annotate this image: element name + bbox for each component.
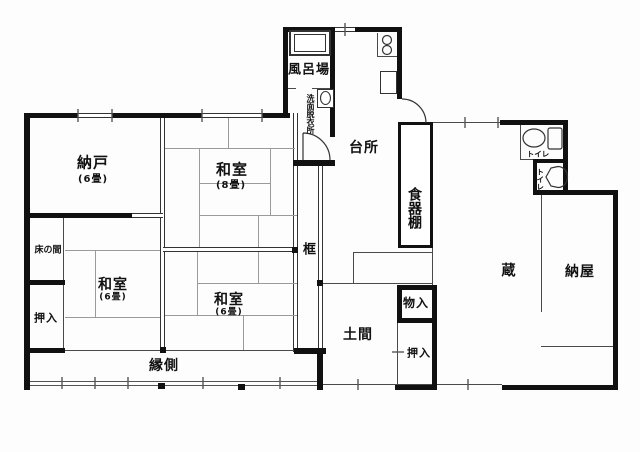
room-size-washitsu6b: (6畳) [215,309,243,318]
opening-tick-marks [62,23,498,390]
room-label-oshiire2: 押入 [407,348,431,359]
room-label-washitsu8: 和室 [216,163,248,178]
pillar-marks [158,247,323,390]
room-label-daidokoro: 台所 [349,141,379,155]
door-swing-icon [303,133,330,160]
room-size-washitsu8: (8畳) [216,181,246,191]
room-label-engawa: 縁側 [149,359,179,373]
room-label-toire1: トイレ [527,150,550,158]
room-label-washitsu6b: 和室 [214,293,244,307]
room-size-nando: (6畳) [78,175,108,185]
washbasin-icon [321,92,331,105]
urinal-icon [546,167,568,188]
room-label-senmen-datsuijo: 洗面脱衣所 [306,94,314,134]
room-label-tokonoma: 床の間 [34,247,61,256]
room-label-naya: 納屋 [565,265,595,279]
room-label-kamachi: 框 [303,244,317,257]
door-swing-icon [402,99,426,123]
room-label-furoba: 風呂場 [288,64,330,77]
room-label-nando: 納戸 [77,156,109,171]
toilet-icon [523,129,545,147]
room-label-oshiire1: 押入 [34,313,58,324]
room-label-washitsu6a: 和室 [98,278,128,292]
room-label-toire2: トイレ [536,168,544,191]
stove-icon [383,36,392,45]
room-label-shokkidana: 食器棚 [407,187,421,229]
toilet-tank-icon [548,128,562,149]
stove-icon [383,46,392,55]
room-size-washitsu6a: (6畳) [99,294,127,303]
room-label-kura: 蔵 [502,264,517,278]
floor-plan-canvas: 納戸 (6畳) 和室 (8畳) 和室 (6畳) 和室 (6畳) 風呂場 洗面脱衣… [0,0,640,452]
room-label-monoire: 物入 [403,297,429,309]
room-label-doma: 土間 [343,328,373,342]
